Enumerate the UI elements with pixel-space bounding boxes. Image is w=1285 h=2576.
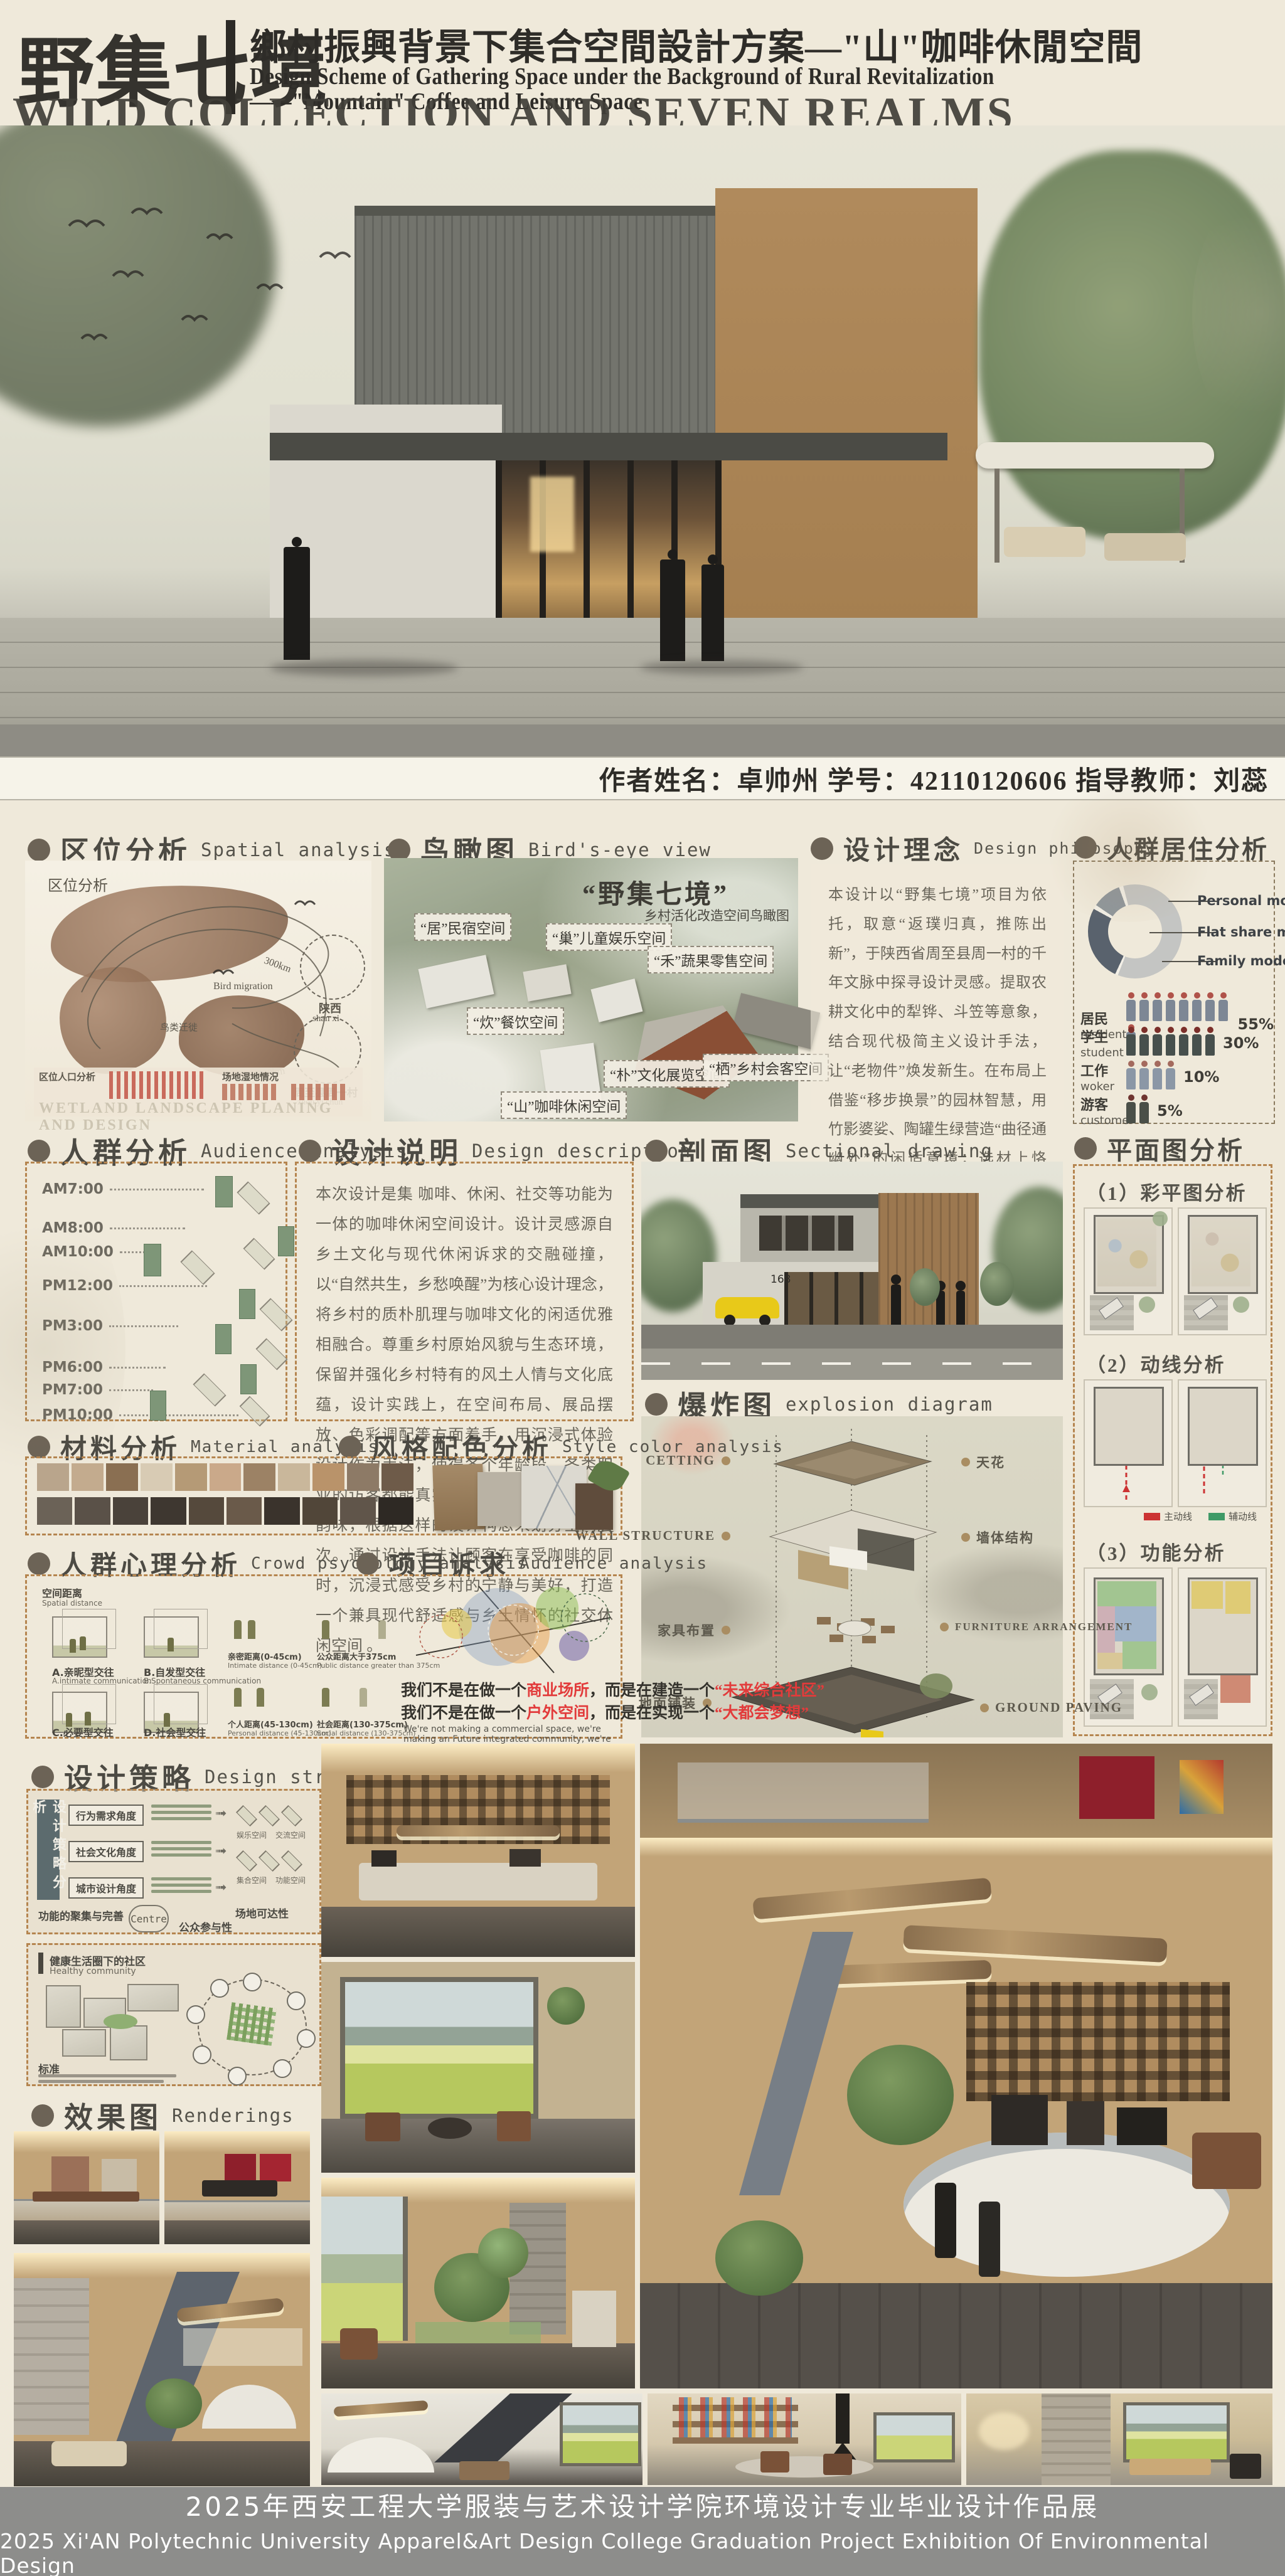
- explosion-label-furniture-cn: 家具布置: [658, 1621, 730, 1640]
- donut-label-flatshare: Flat share mode: [1197, 925, 1285, 940]
- bullet-icon: [1074, 836, 1097, 859]
- author-text: 作者姓名：卓帅州 学号：42110120606 指导教师：刘蕊: [599, 760, 1285, 798]
- space-distance-cn: 空间距离: [42, 1585, 82, 1600]
- timeline-time: PM7:00: [42, 1382, 103, 1398]
- row-percent: 5%: [1157, 1102, 1183, 1120]
- text: ，而是在实现一个: [589, 1705, 715, 1722]
- iso-label: 功能空间: [275, 1875, 306, 1885]
- timeline-time: AM10:00: [42, 1244, 114, 1260]
- render-stone-wall-lounge: [966, 2393, 1272, 2485]
- distance-label: 公众距离大于375cm: [317, 1650, 396, 1662]
- author-bar: 作者姓名：卓帅州 学号：42110120606 指导教师：刘蕊: [0, 756, 1285, 800]
- legend-main: 主动线: [1144, 1510, 1192, 1523]
- label-chip: “炊”餐饮空间: [467, 1007, 564, 1035]
- yellow-car: [715, 1297, 779, 1318]
- circulation-legend: 主动线 辅动线: [1144, 1510, 1257, 1523]
- render-bamboo-interior: [321, 2178, 635, 2388]
- shadow-1: [270, 660, 458, 676]
- iso-room-tile: [237, 1181, 270, 1214]
- row-percent: 30%: [1223, 1034, 1259, 1052]
- label-text: 天花: [976, 1453, 1005, 1471]
- green-cluster: [227, 2002, 277, 2045]
- arrow-icon: ➟: [215, 1880, 227, 1895]
- arrow-icon: ➟: [215, 1843, 227, 1859]
- section-title-en: explosion diagram: [786, 1394, 993, 1415]
- timeline-item: AM8:00: [42, 1220, 185, 1236]
- hero-render: [0, 125, 1285, 756]
- row-percent: 10%: [1183, 1068, 1219, 1086]
- timeline-time: AM7:00: [42, 1181, 104, 1197]
- person-icon: [1153, 1068, 1162, 1089]
- figure: [234, 1620, 242, 1639]
- plans-sub3: （3）功能分析: [1086, 1537, 1226, 1566]
- dot-icon: [961, 1533, 970, 1542]
- public-label: 公众参与性: [179, 1919, 232, 1934]
- timeline-item: PM3:00: [42, 1318, 178, 1334]
- appeal-line-2: 我们不是在做一个户外空间，而是在实现一个“大都会梦想”: [401, 1700, 809, 1723]
- type-label-cn: D.社会型交往: [144, 1724, 206, 1739]
- person-icon: [1205, 1000, 1215, 1021]
- patio-canopy: [976, 442, 1214, 469]
- person-icons: [1124, 1061, 1177, 1093]
- angle-box-1: 行为需求角度: [68, 1805, 144, 1826]
- shrub: [980, 1262, 1014, 1306]
- figure: [322, 1620, 329, 1639]
- residence-box: Personal mode Flat share mode Family mod…: [1073, 861, 1275, 1124]
- timeline-marker: [240, 1364, 257, 1394]
- person-icon: [1192, 1034, 1202, 1056]
- tree-canopy-right: [979, 151, 1285, 539]
- watermark-text: WETLAND LANDSCAPE PLANING AND DESIGN: [39, 1100, 363, 1134]
- cube-spontaneous: [144, 1616, 199, 1658]
- section-title-en: Style color analysis: [562, 1438, 784, 1456]
- building-footprint: [523, 964, 571, 1001]
- dotted-leader: [109, 1389, 153, 1391]
- section-title-en: Renderings: [172, 2105, 294, 2126]
- label-chip: “禾”蔬果零售空间: [648, 946, 774, 973]
- hub-centre: Centre: [129, 1905, 169, 1932]
- bullet-icon: [28, 1140, 50, 1162]
- ground-band: [641, 1325, 1063, 1349]
- subtitle-cn: 鄉村振興背景下集合空間設計方案—"山"咖啡休閒空間: [250, 18, 1143, 70]
- timeline-time: PM10:00: [42, 1407, 113, 1423]
- distance-label: 个人距离(45-130cm): [228, 1718, 313, 1730]
- highlight-text: “未来综合社区”: [715, 1682, 824, 1699]
- section-title-en: Sectional drawing: [786, 1140, 993, 1162]
- timeline-item: AM7:00: [42, 1181, 204, 1197]
- dot-icon: [961, 1458, 970, 1466]
- lounge-chair-2: [1104, 533, 1186, 561]
- render-mezzanine-lounge: [164, 2131, 310, 2244]
- person-icon: [1126, 1000, 1136, 1021]
- psychology-box: 空间距离 Spatial distance A.亲昵型交往 A.intimate…: [25, 1574, 622, 1739]
- dot-icon: [722, 1626, 730, 1635]
- material-row-1: [37, 1463, 413, 1491]
- figure: [234, 1688, 242, 1707]
- timeline-time: AM8:00: [42, 1220, 104, 1236]
- section-renderings-header: 效果图 Renderings: [31, 2095, 294, 2136]
- legend-label: 辅动线: [1229, 1510, 1257, 1523]
- healthy-en: Healthy community: [50, 1966, 136, 1976]
- residence-row-student: 学生 student 30%: [1080, 1026, 1259, 1059]
- person-icon: [1166, 1068, 1175, 1089]
- material-row-2: [37, 1497, 413, 1525]
- building-footprint: [419, 955, 494, 1008]
- function-plan-2: [1178, 1567, 1267, 1727]
- person-icon: [1205, 1034, 1215, 1056]
- timeline-marker: [215, 1324, 232, 1354]
- timeline-time: PM6:00: [42, 1359, 103, 1375]
- footer: 2025年西安工程大学服装与艺术设计学院环境设计专业毕业设计作品展 2025 X…: [0, 2487, 1285, 2576]
- dotted-leader: [119, 1285, 207, 1287]
- person-icon: [1126, 1068, 1136, 1089]
- section-title-en: Spatial analysis: [201, 839, 396, 861]
- iso-room-tile: [193, 1373, 226, 1406]
- road-dashes: [641, 1362, 1063, 1365]
- iso-room-tile: [243, 1238, 275, 1270]
- iso-label: 交流空间: [275, 1830, 306, 1840]
- shrub: [910, 1268, 940, 1306]
- legend-aux: 辅动线: [1208, 1510, 1257, 1523]
- explosion-label-ground-en: GROUND PAVING: [980, 1700, 1122, 1715]
- bullet-icon: [356, 1552, 379, 1575]
- figure: [248, 1620, 255, 1639]
- dotted-leader: [110, 1227, 185, 1229]
- row-label-cn: 游客: [1080, 1098, 1108, 1113]
- bullet-icon: [28, 839, 50, 861]
- person-icon: [1153, 1034, 1162, 1056]
- foreground-walk: [0, 724, 1285, 756]
- highlight-text: 商业场所: [526, 1682, 589, 1699]
- explosion-label-wall-cn: 墙体结构: [961, 1528, 1034, 1547]
- type-label-cn: C.必要型交往: [52, 1724, 114, 1739]
- philosophy-box: 本设计以“野集七境”项目为依托，取意“返璞归真，推陈出新”，于陕西省周至县周一村…: [811, 864, 1064, 1110]
- timeline-time: PM12:00: [42, 1278, 113, 1294]
- person-icon: [1166, 1034, 1175, 1056]
- shanxi-label-en: shan xi: [312, 1014, 339, 1024]
- dotted-leader: [110, 1189, 204, 1190]
- circulation-plan-2: [1178, 1379, 1267, 1507]
- section-title-cn: 设计理念: [843, 829, 964, 867]
- green-swatch: [1208, 1513, 1225, 1520]
- sectional-drawing: 168: [641, 1162, 1063, 1380]
- bird-migration-cn: 鸟类迁徙: [160, 1020, 198, 1034]
- pop-analysis-label: 区位人口分析: [39, 1070, 95, 1083]
- bullet-icon: [645, 1393, 668, 1416]
- canopy-pole-left: [994, 469, 1000, 563]
- description-box: 本次设计是集 咖啡、休闲、社交等功能为一体的咖啡休闲空间设计。设计灵感源自乡土文…: [295, 1162, 634, 1421]
- text: ，而是在建造一个: [589, 1682, 715, 1699]
- header: 野集七境 鄉村振興背景下集合空間設計方案—"山"咖啡休閒空間 Design Sc…: [0, 0, 1285, 125]
- dot-icon: [940, 1623, 949, 1631]
- angle-box-3: 城市设计角度: [68, 1877, 144, 1899]
- building-wood-volume: [715, 188, 978, 621]
- glass-storefront: [496, 460, 722, 625]
- angle-box-2: 社会文化角度: [68, 1841, 144, 1862]
- render-mezzanine-dining: [14, 2131, 159, 2244]
- color-plan-2: [1178, 1207, 1267, 1335]
- iso-label: 娱乐空间: [237, 1830, 267, 1840]
- row-label-cn: 居民: [1080, 1012, 1108, 1027]
- plans-sub1: （1）彩平图分析: [1086, 1177, 1247, 1206]
- residence-row-worker: 工作 woker 10%: [1080, 1060, 1219, 1093]
- label-chip: “居”民宿空间: [414, 913, 511, 941]
- bullet-icon: [645, 1140, 668, 1162]
- figure: [322, 1688, 329, 1707]
- wetland-label: 场地湿地情况: [222, 1070, 279, 1083]
- label-chip: “山”咖啡休闲空间: [501, 1091, 627, 1119]
- label-text: 家具布置: [658, 1621, 715, 1640]
- person-icon: [1139, 1000, 1149, 1021]
- distance-label: 社会距离(130-375cm): [317, 1718, 408, 1730]
- timeline-item: PM12:00: [42, 1278, 207, 1294]
- space-distance-en: Spatial distance: [42, 1599, 102, 1608]
- strategy-box-1: 设计策略分析 行为需求角度 社会文化角度 城市设计角度 ➟ ➟ ➟ 娱乐空间 交…: [26, 1789, 321, 1934]
- distance-label-en: Personal distance (45-130cm): [228, 1729, 331, 1737]
- timeline-item: AM10:00: [42, 1244, 157, 1260]
- house-number: 168: [770, 1273, 791, 1286]
- distance-label-en: Social distance (130-375cm): [317, 1729, 416, 1737]
- label-text: FURNITURE ARRANGEMENT: [955, 1621, 1133, 1633]
- bullet-icon: [339, 1436, 361, 1458]
- person-silhouette-1: [284, 547, 310, 660]
- lounge-chair-1: [1004, 527, 1085, 557]
- section-plans-header: 平面图分析: [1074, 1130, 1245, 1167]
- dot-icon: [722, 1532, 730, 1540]
- render-coffee-shop-stair: [321, 2393, 642, 2485]
- person-icon: [1126, 1034, 1136, 1056]
- arrow-icon: ➟: [215, 1806, 227, 1821]
- explosion-label-ceiling-cn: 天花: [961, 1453, 1005, 1471]
- strategy-box-2: 健康生活圈下的社区 Healthy community 标准: [26, 1943, 321, 2086]
- explosion-label-furniture-en: FURNITURE ARRANGEMENT: [940, 1621, 1133, 1633]
- birdseye-caption-sub: 乡村活化改造空间鸟瞰图: [644, 906, 789, 925]
- person-icons: [1124, 1095, 1151, 1126]
- render-window-field-view: [321, 1962, 635, 2173]
- timeline-marker: [278, 1226, 294, 1256]
- bullet-icon: [28, 1436, 50, 1458]
- footer-line-en: 2025 Xi'AN Polytechnic University Appare…: [0, 2529, 1285, 2576]
- circulation-plan-1: [1084, 1379, 1173, 1507]
- iso-room-tile: [240, 1396, 270, 1427]
- bird-migration-label: Bird migration: [213, 981, 273, 992]
- bullet-icon: [299, 1140, 321, 1162]
- donut-label-family: Family mode: [1197, 953, 1285, 968]
- person-icon: [1179, 1034, 1188, 1056]
- timeline-item: PM7:00: [42, 1382, 153, 1398]
- bullet-icon: [811, 837, 833, 860]
- row-label-en: student: [1080, 1046, 1124, 1059]
- red-swatch: [1144, 1513, 1160, 1520]
- green-court: [104, 2014, 137, 2029]
- timeline-marker: [239, 1289, 255, 1319]
- dotted-leader: [109, 1367, 166, 1369]
- bullet-icon: [31, 1766, 54, 1788]
- highlight-text: “大都会梦想”: [715, 1705, 809, 1722]
- building-beam: [270, 433, 947, 460]
- iso-room-tile: [256, 1338, 288, 1370]
- site-access-label: 场地可达性: [235, 1905, 289, 1921]
- spatial-map-panel: 区位分析 Bird migration 鸟类迁徙 陕西 shan xi 300k…: [25, 861, 371, 1121]
- plans-sub2: （2）动线分析: [1086, 1349, 1226, 1377]
- text: 我们不是在做一个: [401, 1705, 526, 1722]
- render-stair-lounge: [14, 2253, 310, 2486]
- cube-intimate: [52, 1616, 107, 1658]
- person-icon: [1139, 1068, 1149, 1089]
- section-title-en: Audience analysis: [520, 1554, 708, 1573]
- person-icon: [1153, 1000, 1162, 1021]
- render-cafe-counter-wall: [321, 1744, 635, 1957]
- mini-bars-2: [291, 1084, 348, 1100]
- poster-board: 野集七境 鄉村振興背景下集合空間設計方案—"山"咖啡休閒空間 Design Sc…: [0, 0, 1285, 2576]
- iso-room-tile: [259, 1298, 292, 1331]
- birdseye-panel: “野集七境” 乡村活化改造空间鸟瞰图 “居”民宿空间 “巢”儿童娱乐空间 “禾”…: [384, 858, 798, 1121]
- bullet-icon: [28, 1552, 50, 1575]
- materials-box: [25, 1456, 622, 1535]
- person-icon: [1218, 1000, 1228, 1021]
- row-label-cn: 学生: [1080, 1030, 1108, 1046]
- plans-box: （1）彩平图分析 （2）动线分析 主动线 辅动线: [1073, 1164, 1272, 1736]
- dotted-leader: [119, 1414, 238, 1416]
- residence-row-customer: 游客 customer 5%: [1080, 1094, 1183, 1127]
- strategy-vertical-label: 设计策略分析: [37, 1799, 60, 1900]
- person-icon: [1139, 1102, 1149, 1123]
- donut-label-personal: Personal mode: [1197, 893, 1285, 908]
- interior-light: [530, 477, 574, 552]
- render-main-circular-bar: [640, 1744, 1272, 2388]
- section-title-cn: 平面图分析: [1107, 1130, 1245, 1167]
- bullet-icon: [1074, 1137, 1097, 1160]
- shadow-2: [640, 660, 803, 675]
- person-icon: [1192, 1000, 1202, 1021]
- subtitle-en-1: Design Scheme of Gathering Space under t…: [250, 64, 994, 91]
- person-silhouette-2: [660, 559, 685, 661]
- map-bottom-strip: 区位人口分析 场地湿地情况 WETLAND LANDSCAPE PLANING …: [34, 1068, 363, 1116]
- building-footprint: [591, 978, 643, 1022]
- birds-flock-icon: [56, 201, 383, 364]
- pop-icon-rows: [109, 1071, 203, 1099]
- timeline-item: PM10:00: [42, 1407, 238, 1423]
- row-label-en: woker: [1080, 1080, 1114, 1093]
- person-icon: [1166, 1000, 1175, 1021]
- glass-doors: [784, 1272, 878, 1325]
- label-text: GROUND PAVING: [995, 1700, 1122, 1715]
- distance-label: 亲密距离(0-45cm): [228, 1650, 302, 1662]
- tick-bar: [38, 1953, 43, 1974]
- appeal-line-1: 我们不是在做一个商业场所，而是在建造一个“未来综合社区”: [401, 1678, 824, 1700]
- figure: [956, 1291, 965, 1325]
- timeline-marker: [144, 1244, 161, 1276]
- person-icon: [1179, 1000, 1188, 1021]
- distance-label-en: Intimate distance (0-45cm): [228, 1662, 322, 1670]
- timeline-time: PM3:00: [42, 1318, 103, 1334]
- color-plan-1: [1084, 1207, 1173, 1335]
- person-icons: [1124, 1027, 1217, 1059]
- appeal-venn-diagram: [403, 1580, 617, 1674]
- audience-timeline-box: AM7:00 AM8:00 AM10:00 PM12:00 PM3:00 PM6…: [25, 1162, 287, 1421]
- label-text: 墙体结构: [976, 1528, 1034, 1547]
- section-title-cn: 效果图: [64, 2095, 162, 2136]
- timeline-item: PM6:00: [42, 1359, 166, 1375]
- dot-icon: [980, 1704, 989, 1712]
- footer-line-cn: 2025年西安工程大学服装与艺术设计学院环境设计专业毕业设计作品展: [186, 2486, 1100, 2524]
- mini-bars-1: [222, 1084, 279, 1100]
- render-shelf-fireplace: [648, 2393, 961, 2485]
- figure: [360, 1688, 367, 1707]
- person-icon: [1126, 1102, 1136, 1123]
- residence-donut-chart: [1088, 884, 1182, 978]
- person-silhouette-3: [701, 564, 724, 661]
- hub-title: 功能的聚集与完善: [38, 1907, 124, 1923]
- building-roof-edge: [355, 206, 744, 216]
- upper-windows: [759, 1216, 853, 1251]
- text: 我们不是在做一个: [401, 1682, 526, 1699]
- bullet-icon: [31, 2104, 54, 2127]
- section-title-en: Bird's-eye view: [528, 839, 712, 861]
- figure: [891, 1285, 901, 1325]
- row-label-cn: 工作: [1080, 1064, 1108, 1079]
- timeline-marker: [150, 1391, 166, 1421]
- highlight-text: 户外空间: [526, 1705, 589, 1722]
- figure: [378, 1620, 386, 1639]
- iso-label: 集合空间: [237, 1875, 267, 1885]
- figure: [257, 1688, 264, 1707]
- timeline-marker: [215, 1176, 233, 1207]
- legend-label: 主动线: [1164, 1510, 1192, 1523]
- dotted-leader: [109, 1325, 178, 1327]
- shanxi-circle: [300, 935, 365, 1000]
- person-icon: [1139, 1034, 1149, 1056]
